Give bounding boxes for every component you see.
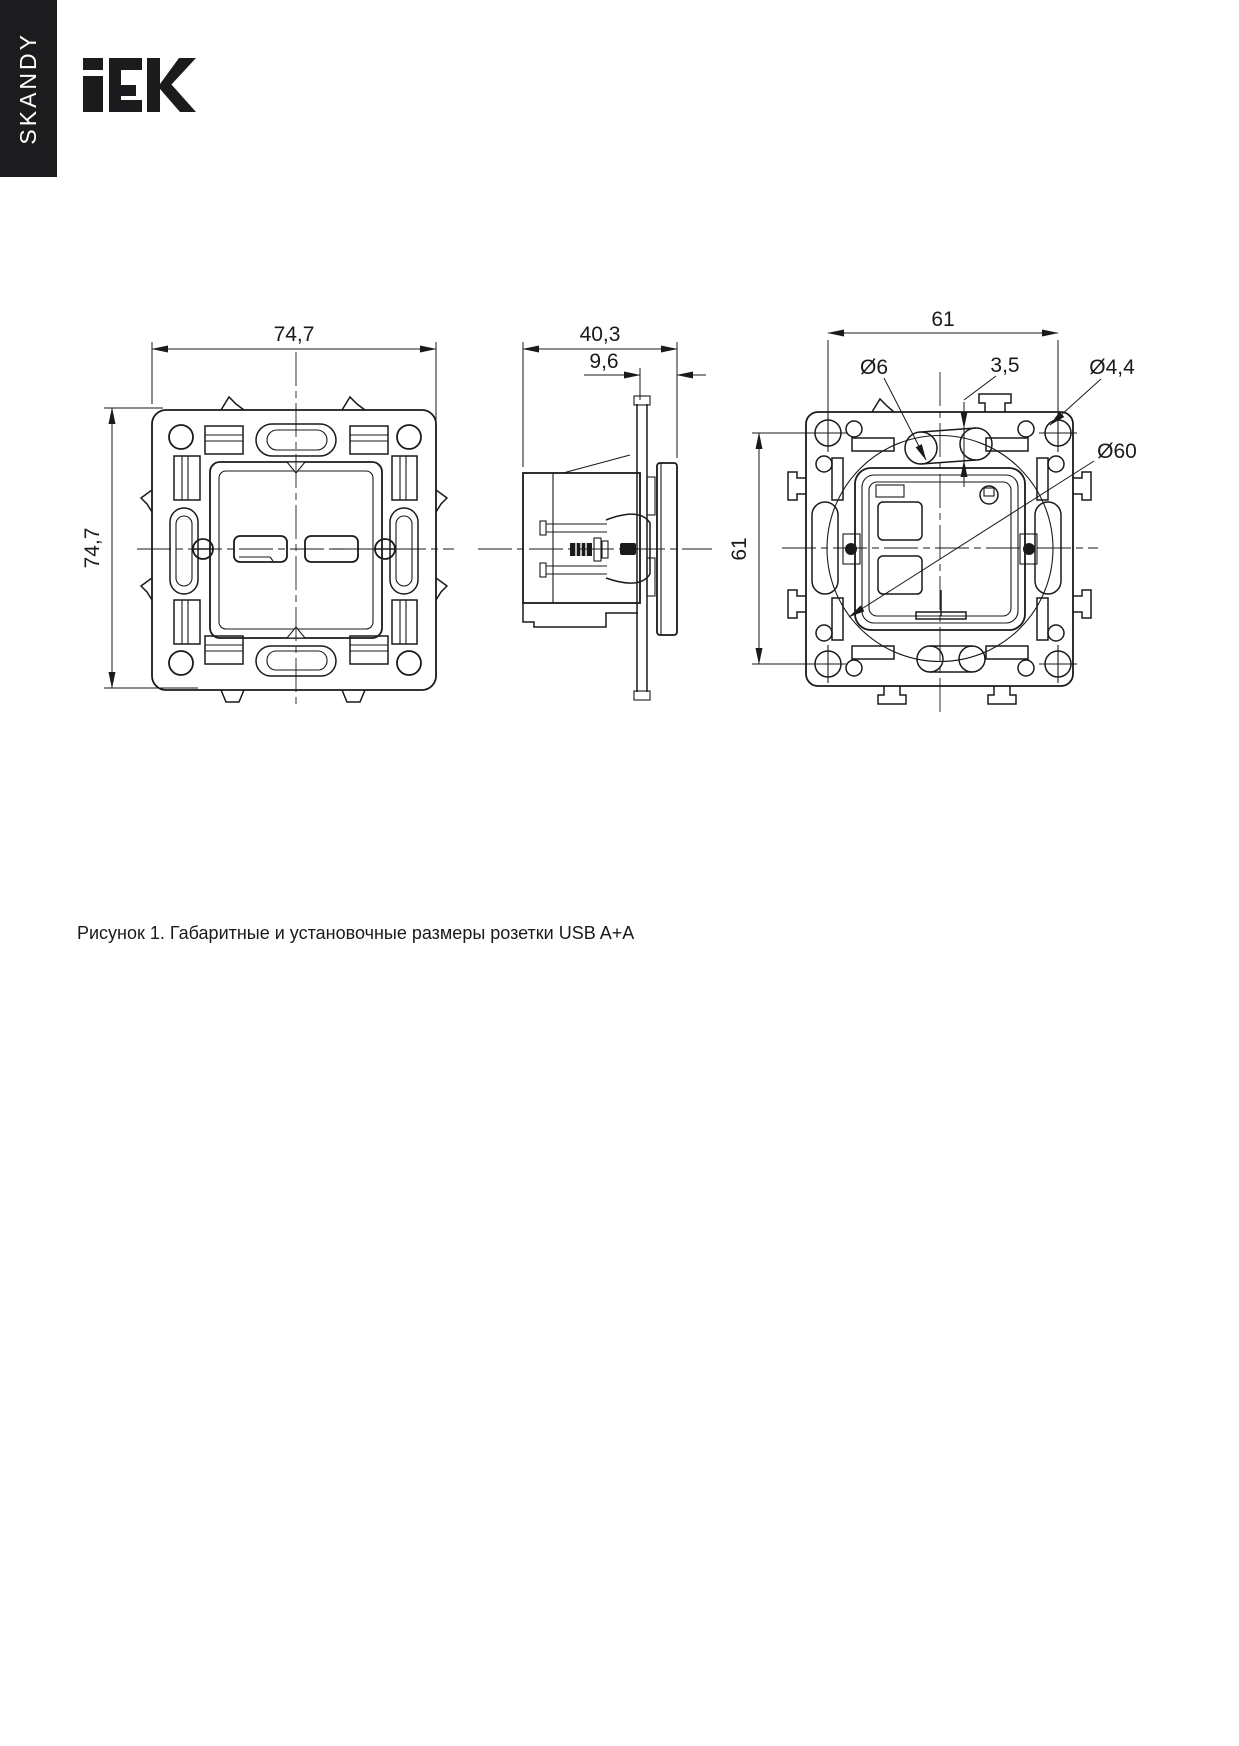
figure-caption: Рисунок 1. Габаритные и установочные раз… — [77, 921, 837, 945]
dim-side-depth: 40,3 — [580, 323, 621, 346]
front-kidney-slots — [170, 508, 418, 594]
side-screw — [570, 538, 636, 561]
side-dimensions: 40,3 9,6 — [523, 323, 706, 467]
side-flange — [634, 396, 655, 700]
rear-view: 61 61 Ø6 3,5 Ø4,4 Ø60 — [728, 308, 1137, 712]
dim-front-height: 74,7 — [81, 528, 104, 569]
front-view: 74,7 74,7 — [81, 323, 454, 708]
label-slot-width: 3,5 — [990, 354, 1019, 377]
front-centerlines — [137, 352, 454, 708]
dim-front-width: 74,7 — [274, 323, 315, 346]
label-screw-hole-dia: Ø4,4 — [1089, 356, 1135, 379]
dim-side-protrusion: 9,6 — [589, 350, 618, 373]
label-slot-dia: Ø6 — [860, 356, 888, 379]
dim-rear-spacing-v: 61 — [728, 537, 751, 560]
side-view: 40,3 9,6 — [478, 323, 712, 700]
label-mount-dia: Ø60 — [1097, 440, 1137, 463]
dim-rear-spacing-h: 61 — [931, 308, 954, 331]
technical-drawing: 74,7 74,7 — [0, 0, 1239, 1746]
side-body — [523, 455, 640, 627]
rear-dimensions: 61 61 Ø6 3,5 Ø4,4 Ø60 — [728, 308, 1137, 664]
front-frame-outline — [141, 397, 447, 702]
rear-mounting-slots — [905, 428, 992, 672]
rear-frame-outline — [788, 394, 1091, 704]
